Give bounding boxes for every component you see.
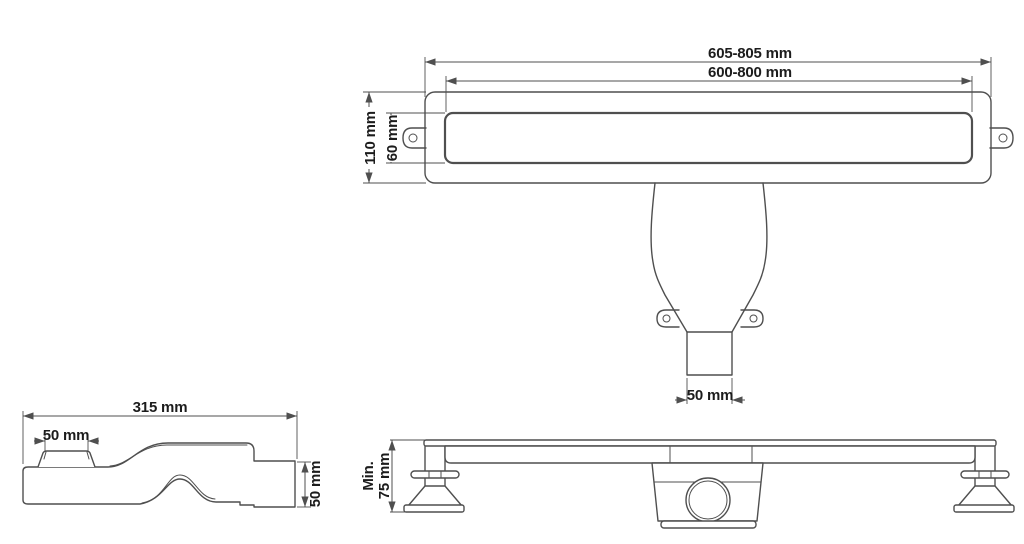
foot-base-plate: [954, 505, 1014, 512]
dim-cutout-length-label: 600-800 mm: [708, 64, 792, 81]
technical-drawing-page: 605-805 mm 600-800 mm 110 mm 60 mm 50 mm: [0, 0, 1024, 544]
dim-min-height-label: 75 mm: [376, 453, 393, 500]
mounting-tab-left: [403, 128, 426, 148]
dim-outlet-height-label: 50 mm: [307, 461, 324, 508]
screw-hole-icon: [663, 315, 670, 322]
channel-body: [445, 446, 975, 463]
outlet-pipe-circle: [686, 478, 730, 522]
foot-skirt: [958, 486, 1012, 506]
screw-hole-icon: [409, 134, 417, 142]
mounting-tab-right: [990, 128, 1013, 148]
dim-outer-length-label: 605-805 mm: [708, 45, 792, 62]
outlet-spigot: [687, 332, 732, 375]
funnel-tab-right: [741, 310, 763, 327]
screw-hole-icon: [750, 315, 757, 322]
foot-base-plate: [404, 505, 464, 512]
screw-hole-icon: [999, 134, 1007, 142]
dim-length-label: 315 mm: [133, 399, 188, 416]
inlet-stub-outline: [38, 451, 95, 467]
top-view: 605-805 mm 600-800 mm 110 mm 60 mm 50 mm: [361, 45, 1013, 404]
side-view: 315 mm 50 mm 50 mm: [23, 399, 324, 507]
drawing-canvas: 605-805 mm 600-800 mm 110 mm 60 mm 50 mm: [0, 0, 1024, 544]
dim-outlet-width-label: 50 mm: [687, 387, 734, 404]
dim-body-width-label: 110 mm: [362, 111, 379, 165]
dim-grate-width-label: 60 mm: [384, 115, 401, 162]
dim-min-label: Min.: [360, 461, 377, 490]
dim-inlet-width-label: 50 mm: [43, 427, 90, 444]
grate-top-rail: [424, 440, 996, 446]
front-view: Min. 75 mm: [360, 440, 1014, 528]
drain-grate: [445, 113, 972, 163]
foot-skirt: [408, 486, 462, 506]
foot-adjuster-nut: [961, 471, 1009, 478]
foot-adjuster-nut: [411, 471, 459, 478]
trap-base-lip: [661, 521, 756, 528]
